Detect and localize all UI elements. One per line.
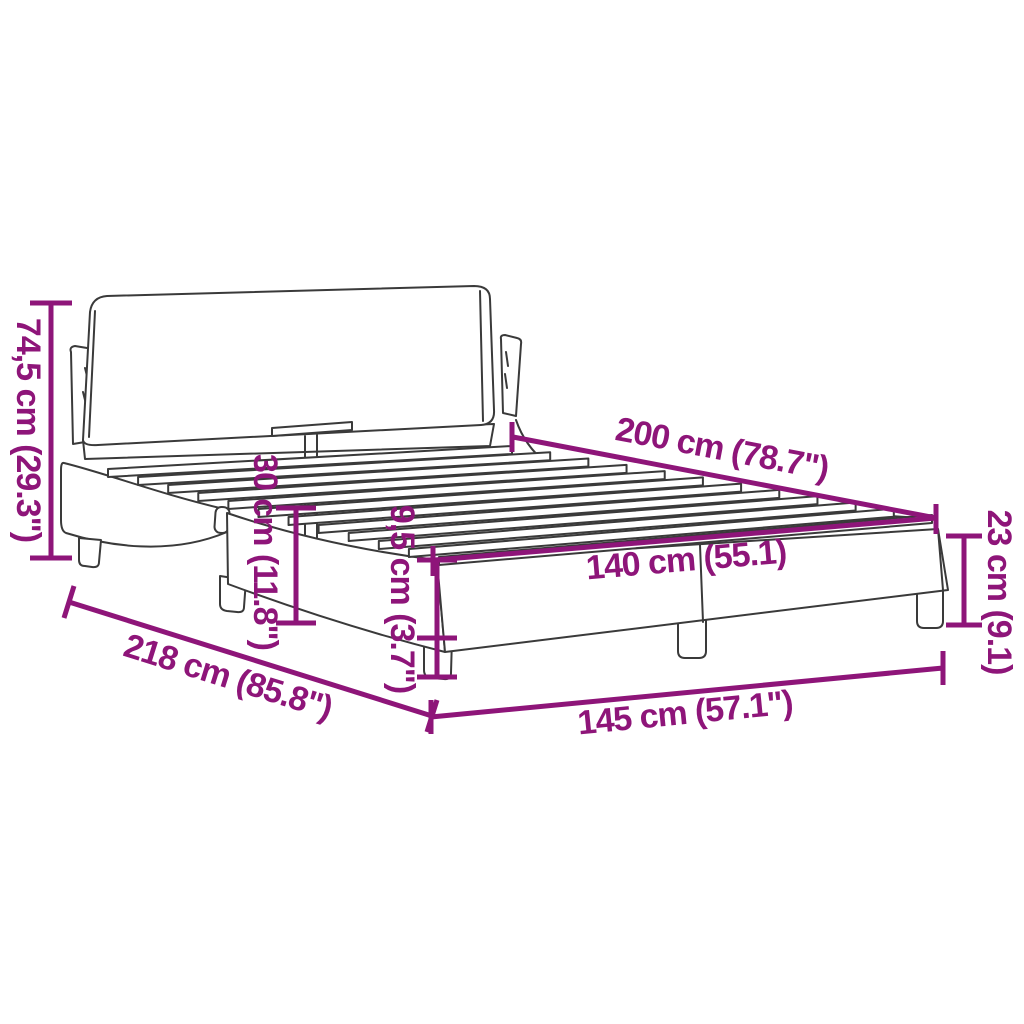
headboard-right-post xyxy=(501,335,521,416)
dimension-label-side-rail-height: 30 cm (11.8") xyxy=(246,454,284,650)
bed-frame-dimension-diagram: 74,5 cm (29.3") 30 cm (11.8") 9,5 cm (3.… xyxy=(0,0,1024,1024)
dimension-label-total-height: 74,5 cm (29.3") xyxy=(9,318,47,542)
dimension-label-clearance: 9,5 cm (3.7") xyxy=(383,505,421,693)
dimension-label-foot-end-height: 23 cm (9.1) xyxy=(980,510,1018,675)
leg-head-left xyxy=(79,538,101,567)
dimension-line xyxy=(946,536,982,625)
dimension-foot-end-height xyxy=(946,536,982,625)
diagram-canvas: 74,5 cm (29.3") 30 cm (11.8") 9,5 cm (3.… xyxy=(0,0,1024,1024)
headboard-panel xyxy=(83,286,494,445)
